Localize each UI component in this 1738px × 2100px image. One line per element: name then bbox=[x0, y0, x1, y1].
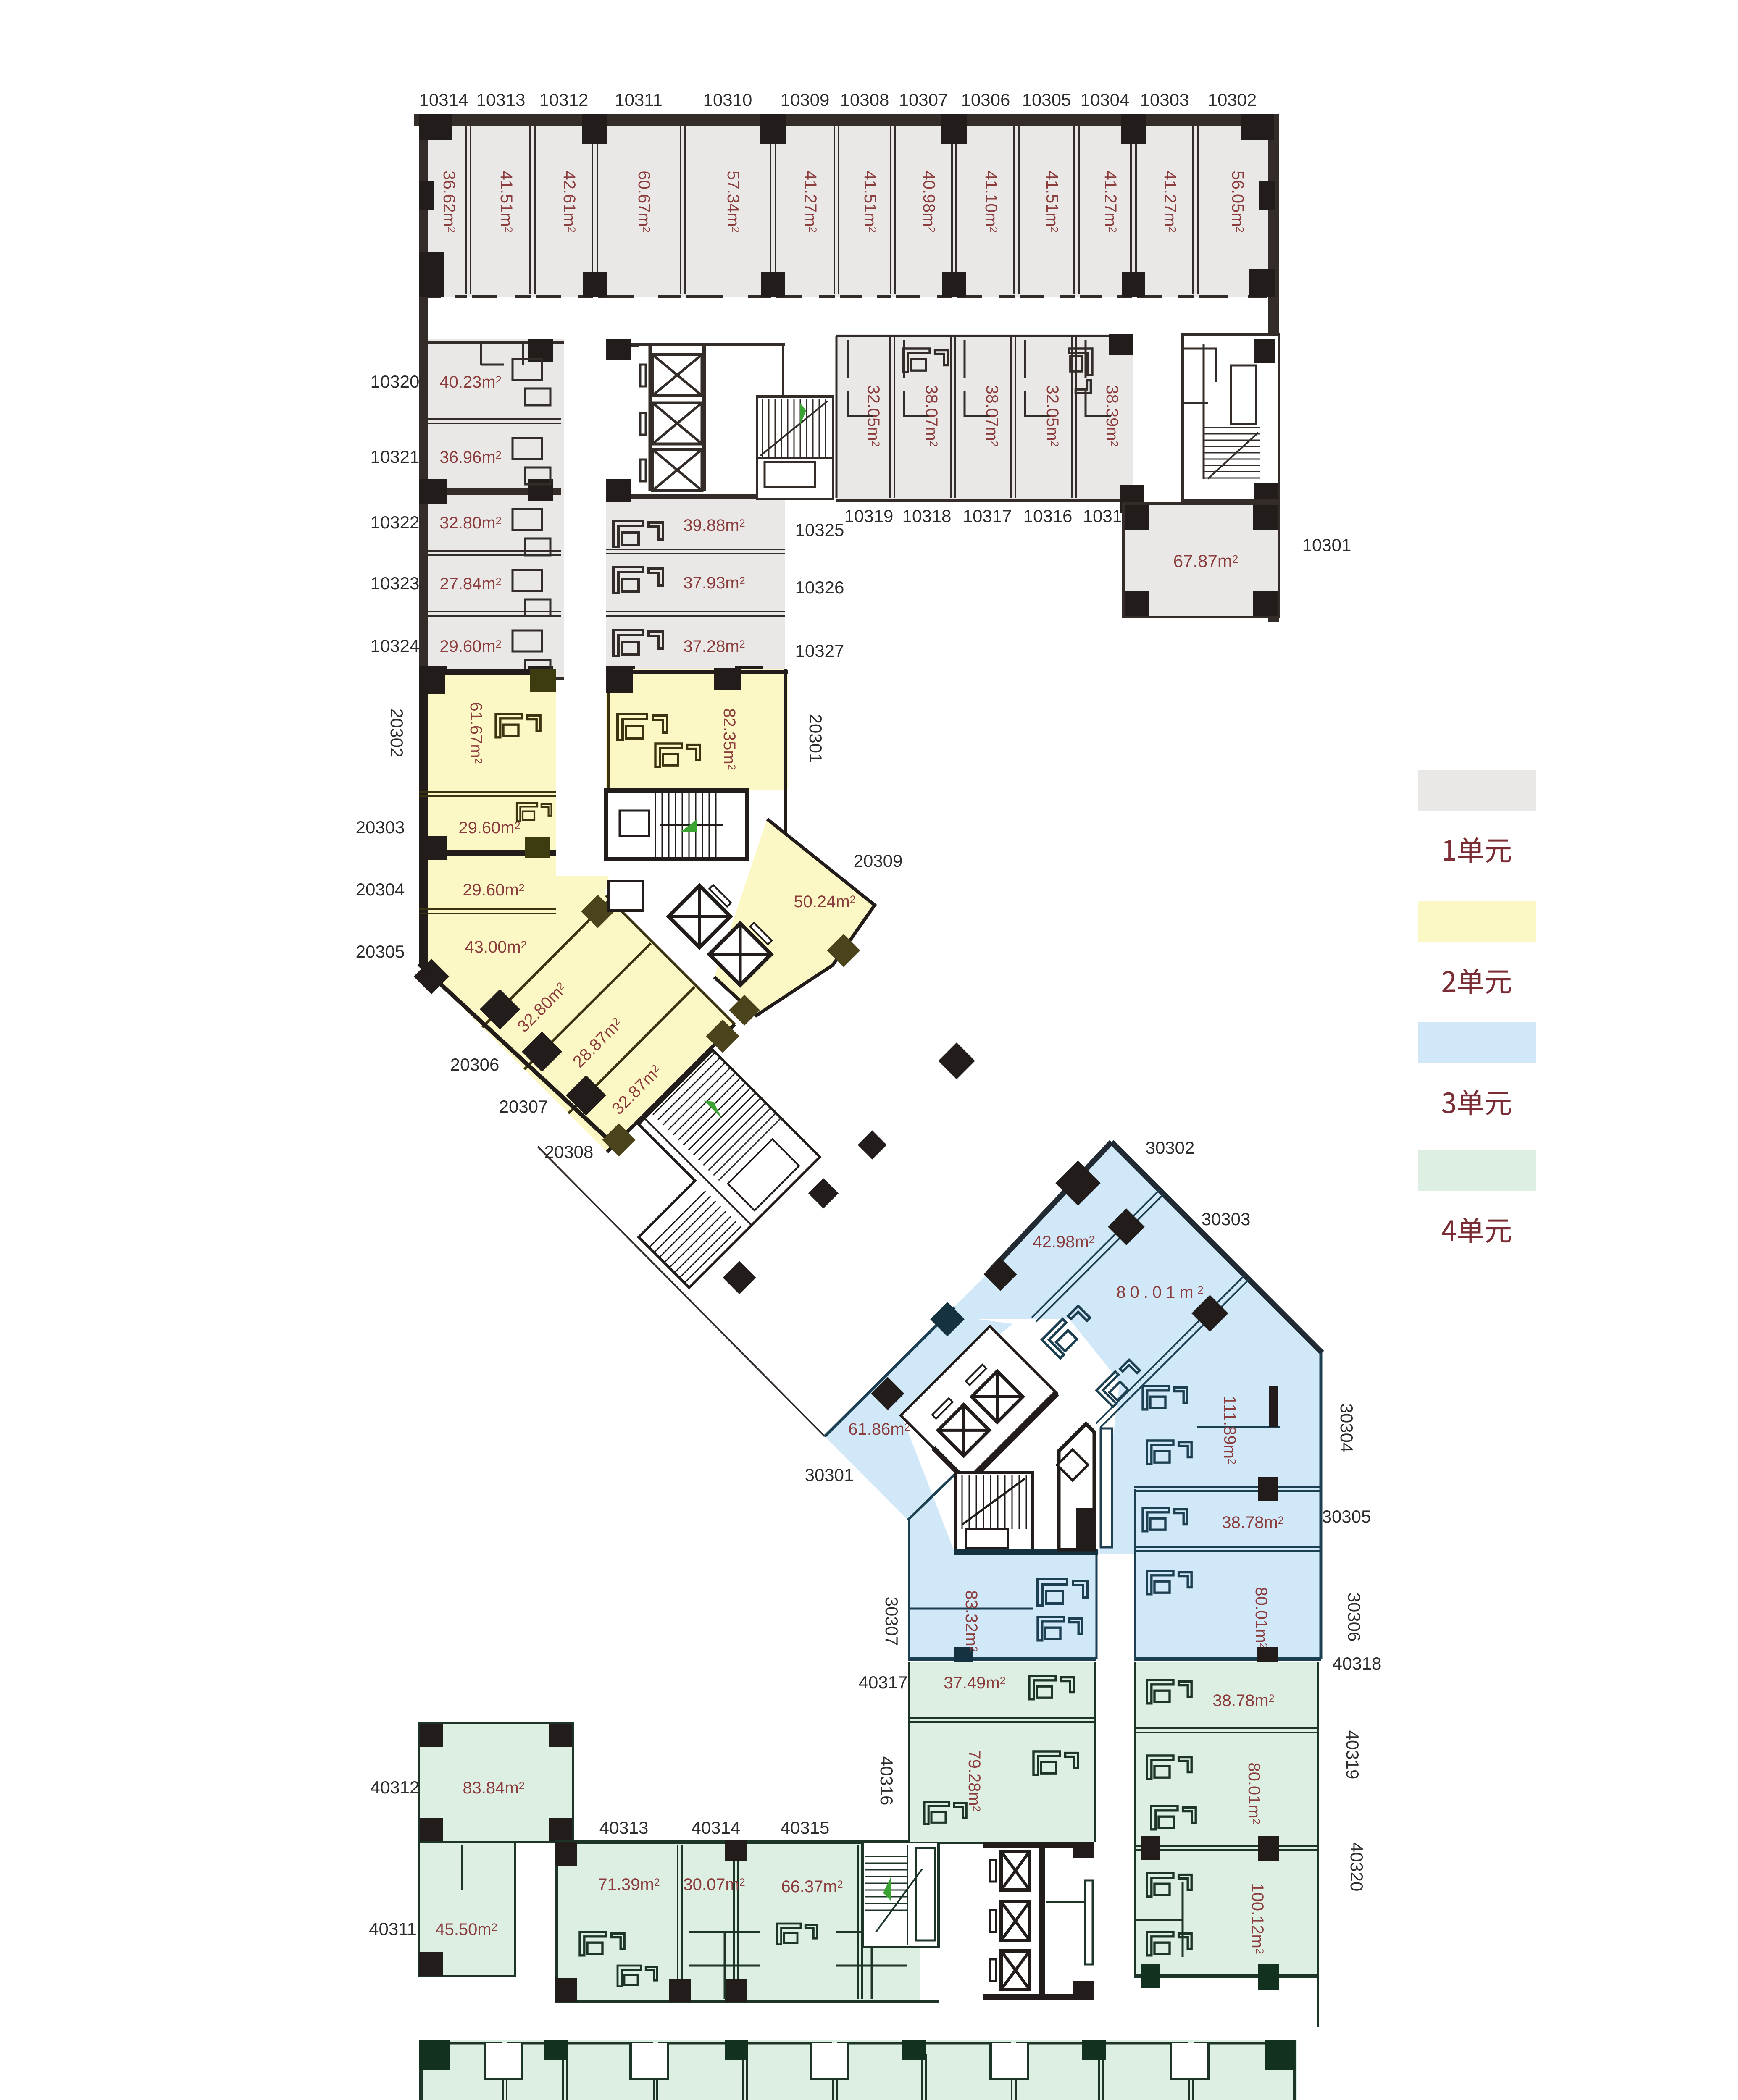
svg-text:10320: 10320 bbox=[371, 372, 420, 391]
svg-text:10324: 10324 bbox=[371, 636, 420, 656]
svg-text:10316: 10316 bbox=[1023, 506, 1073, 526]
svg-text:41.51m2: 41.51m2 bbox=[861, 171, 879, 232]
svg-text:79.28m2: 79.28m2 bbox=[965, 1750, 983, 1811]
svg-text:42.61m2: 42.61m2 bbox=[560, 171, 578, 232]
svg-text:10309: 10309 bbox=[781, 90, 830, 110]
svg-text:43.00m2: 43.00m2 bbox=[465, 938, 526, 956]
svg-text:10327: 10327 bbox=[795, 641, 844, 661]
svg-text:80.01m2: 80.01m2 bbox=[1116, 1283, 1207, 1302]
svg-text:36.96m2: 36.96m2 bbox=[439, 448, 501, 467]
svg-text:71.39m2: 71.39m2 bbox=[598, 1875, 660, 1894]
svg-text:80.01m2: 80.01m2 bbox=[1252, 1587, 1270, 1648]
svg-text:40311: 40311 bbox=[369, 1919, 417, 1939]
svg-text:30304: 30304 bbox=[1337, 1404, 1357, 1453]
svg-text:20308: 20308 bbox=[544, 1142, 594, 1162]
svg-text:39.88m2: 39.88m2 bbox=[683, 516, 745, 535]
svg-text:10306: 10306 bbox=[961, 90, 1010, 110]
svg-text:40313: 40313 bbox=[599, 1818, 649, 1837]
svg-text:30301: 30301 bbox=[805, 1465, 854, 1485]
svg-text:66.37m2: 66.37m2 bbox=[781, 1877, 843, 1896]
svg-text:10304: 10304 bbox=[1081, 90, 1130, 110]
svg-text:100.12m2: 100.12m2 bbox=[1248, 1883, 1267, 1954]
svg-text:10307: 10307 bbox=[899, 90, 948, 110]
svg-text:80.01m2: 80.01m2 bbox=[1245, 1762, 1263, 1824]
svg-text:41.51m2: 41.51m2 bbox=[1043, 171, 1061, 232]
svg-text:41.51m2: 41.51m2 bbox=[497, 171, 515, 232]
svg-text:30307: 30307 bbox=[882, 1597, 902, 1646]
svg-text:40316: 40316 bbox=[877, 1756, 897, 1806]
svg-text:56.05m2: 56.05m2 bbox=[1228, 171, 1247, 232]
svg-text:10319: 10319 bbox=[844, 506, 894, 526]
svg-text:61.86m2: 61.86m2 bbox=[848, 1420, 910, 1438]
svg-text:30302: 30302 bbox=[1146, 1138, 1195, 1158]
svg-text:10301: 10301 bbox=[1302, 535, 1351, 555]
svg-text:20304: 20304 bbox=[356, 879, 405, 899]
svg-text:32.80m2: 32.80m2 bbox=[439, 514, 501, 532]
svg-text:20309: 20309 bbox=[854, 851, 903, 871]
svg-text:37.93m2: 37.93m2 bbox=[683, 574, 745, 592]
svg-text:10326: 10326 bbox=[795, 577, 844, 597]
svg-text:10317: 10317 bbox=[963, 506, 1012, 526]
svg-text:20306: 20306 bbox=[450, 1055, 500, 1074]
svg-text:41.27m2: 41.27m2 bbox=[1161, 171, 1179, 232]
svg-text:40319: 40319 bbox=[1343, 1730, 1362, 1780]
svg-text:30303: 30303 bbox=[1202, 1209, 1251, 1229]
svg-text:41.10m2: 41.10m2 bbox=[982, 171, 1000, 232]
svg-text:10311: 10311 bbox=[615, 90, 663, 110]
svg-text:10313: 10313 bbox=[476, 90, 526, 110]
svg-text:10308: 10308 bbox=[840, 90, 889, 110]
svg-text:111.89m2: 111.89m2 bbox=[1220, 1396, 1239, 1465]
svg-text:38.78m2: 38.78m2 bbox=[1222, 1513, 1283, 1532]
svg-text:20305: 20305 bbox=[356, 942, 405, 961]
svg-text:40.23m2: 40.23m2 bbox=[439, 373, 501, 391]
svg-text:60.67m2: 60.67m2 bbox=[635, 171, 653, 232]
svg-text:30306: 30306 bbox=[1344, 1593, 1364, 1642]
svg-text:40314: 40314 bbox=[692, 1818, 741, 1837]
svg-text:57.34m2: 57.34m2 bbox=[724, 171, 742, 232]
svg-text:40312: 40312 bbox=[371, 1777, 420, 1797]
svg-text:45.50m2: 45.50m2 bbox=[435, 1920, 497, 1939]
svg-text:30305: 30305 bbox=[1322, 1507, 1371, 1526]
svg-text:50.24m2: 50.24m2 bbox=[794, 892, 855, 911]
svg-text:10325: 10325 bbox=[795, 520, 844, 540]
svg-text:83.84m2: 83.84m2 bbox=[463, 1779, 524, 1797]
svg-text:20307: 20307 bbox=[499, 1097, 548, 1116]
svg-text:61.67m2: 61.67m2 bbox=[467, 702, 485, 764]
svg-text:82.35m2: 82.35m2 bbox=[720, 708, 739, 770]
svg-text:38.78m2: 38.78m2 bbox=[1212, 1691, 1274, 1710]
svg-text:42.98m2: 42.98m2 bbox=[1033, 1233, 1094, 1251]
svg-text:36.62m2: 36.62m2 bbox=[440, 171, 458, 232]
svg-text:10314: 10314 bbox=[419, 90, 468, 110]
svg-text:10310: 10310 bbox=[703, 90, 752, 110]
svg-text:27.84m2: 27.84m2 bbox=[439, 575, 501, 593]
svg-text:37.28m2: 37.28m2 bbox=[683, 637, 745, 656]
svg-text:67.87m2: 67.87m2 bbox=[1173, 551, 1238, 571]
svg-text:83.32m2: 83.32m2 bbox=[962, 1590, 981, 1652]
svg-text:29.60m2: 29.60m2 bbox=[458, 819, 520, 837]
svg-text:37.49m2: 37.49m2 bbox=[944, 1674, 1005, 1692]
svg-text:29.60m2: 29.60m2 bbox=[439, 637, 501, 656]
svg-text:10312: 10312 bbox=[539, 90, 589, 110]
svg-text:29.60m2: 29.60m2 bbox=[463, 881, 524, 899]
svg-text:10318: 10318 bbox=[902, 506, 952, 526]
svg-text:10305: 10305 bbox=[1022, 90, 1071, 110]
svg-text:20301: 20301 bbox=[806, 714, 826, 763]
svg-text:10302: 10302 bbox=[1208, 90, 1257, 110]
svg-text:10303: 10303 bbox=[1140, 90, 1189, 110]
svg-text:20303: 20303 bbox=[356, 817, 405, 837]
svg-text:41.27m2: 41.27m2 bbox=[1101, 171, 1120, 232]
svg-text:40320: 40320 bbox=[1347, 1843, 1367, 1892]
svg-text:30.07m2: 30.07m2 bbox=[683, 1875, 745, 1894]
svg-text:41.27m2: 41.27m2 bbox=[801, 171, 820, 232]
svg-text:40315: 40315 bbox=[781, 1818, 830, 1837]
svg-text:10321: 10321 bbox=[371, 447, 420, 467]
svg-text:10323: 10323 bbox=[371, 573, 420, 593]
svg-text:40.98m2: 40.98m2 bbox=[920, 171, 938, 232]
svg-text:20302: 20302 bbox=[387, 709, 407, 758]
svg-text:40317: 40317 bbox=[859, 1672, 908, 1692]
svg-text:40318: 40318 bbox=[1333, 1654, 1382, 1673]
svg-text:10322: 10322 bbox=[371, 512, 420, 532]
